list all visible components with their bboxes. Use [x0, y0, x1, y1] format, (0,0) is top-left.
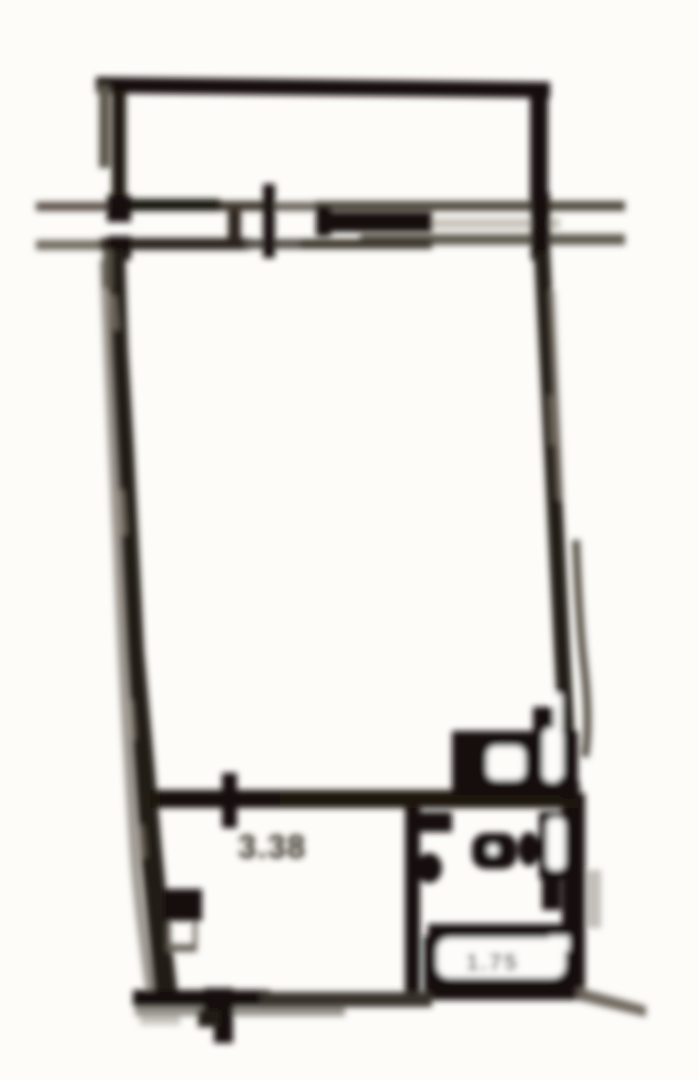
svg-text:1.75: 1.75 — [466, 949, 519, 975]
svg-text:3.38: 3.38 — [238, 828, 306, 865]
